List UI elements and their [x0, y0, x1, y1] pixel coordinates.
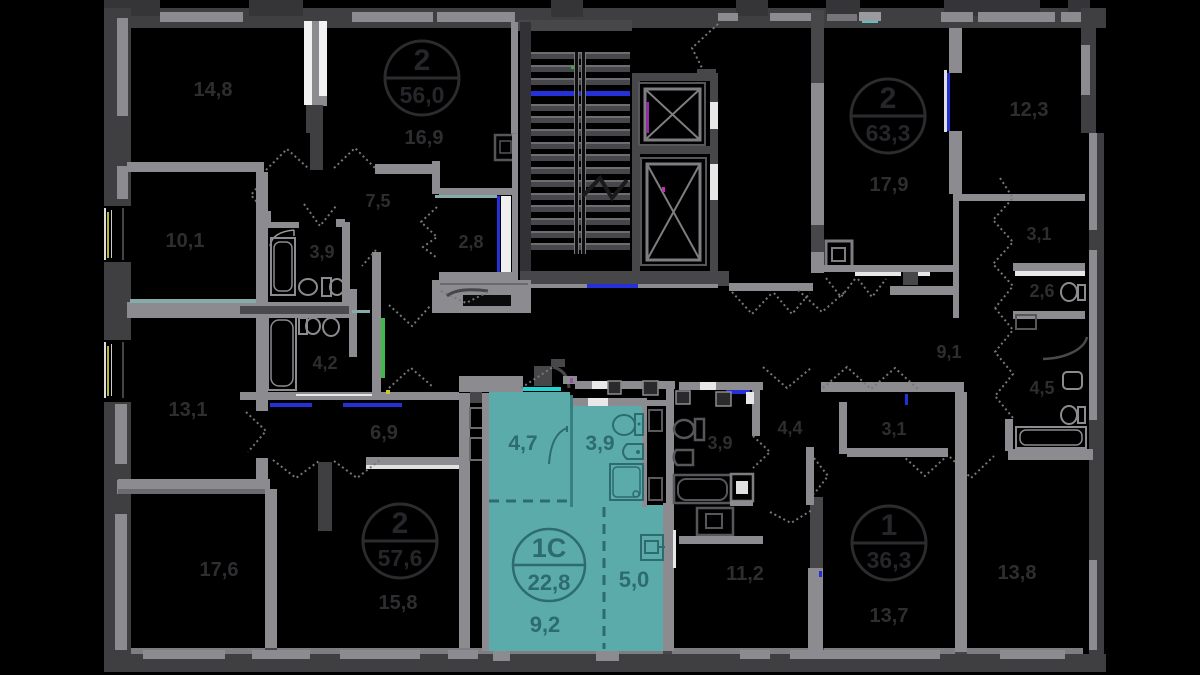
svg-text:1С: 1С [532, 533, 567, 563]
svg-text:56,0: 56,0 [400, 82, 445, 108]
svg-text:22,8: 22,8 [528, 570, 571, 595]
svg-text:1: 1 [881, 509, 898, 542]
svg-text:63,3: 63,3 [866, 120, 911, 146]
svg-text:15,8: 15,8 [379, 592, 418, 614]
svg-text:13,7: 13,7 [870, 605, 909, 627]
svg-text:57,6: 57,6 [378, 545, 423, 571]
svg-text:5,0: 5,0 [619, 567, 650, 592]
svg-text:13,8: 13,8 [998, 562, 1037, 584]
svg-text:3,9: 3,9 [585, 432, 614, 455]
svg-text:2: 2 [414, 44, 431, 77]
svg-text:4,7: 4,7 [508, 432, 537, 455]
svg-text:2,6: 2,6 [1029, 281, 1054, 301]
svg-text:13,1: 13,1 [169, 399, 208, 421]
svg-text:4,4: 4,4 [777, 418, 802, 438]
svg-text:9,2: 9,2 [530, 612, 561, 637]
svg-text:12,3: 12,3 [1010, 99, 1049, 121]
svg-text:2: 2 [392, 507, 409, 540]
svg-text:3,1: 3,1 [881, 419, 906, 439]
svg-text:6,9: 6,9 [370, 422, 398, 444]
svg-text:10,1: 10,1 [166, 230, 205, 252]
svg-text:4,2: 4,2 [312, 353, 337, 373]
svg-text:2: 2 [880, 82, 897, 115]
svg-text:7,5: 7,5 [365, 191, 390, 211]
svg-text:36,3: 36,3 [867, 547, 912, 573]
svg-text:17,6: 17,6 [200, 559, 239, 581]
svg-text:3,9: 3,9 [309, 242, 334, 262]
svg-text:16,9: 16,9 [405, 127, 444, 149]
svg-text:3,9: 3,9 [707, 433, 732, 453]
svg-text:9,1: 9,1 [936, 342, 961, 362]
svg-text:4,5: 4,5 [1029, 378, 1054, 398]
svg-text:14,8: 14,8 [194, 79, 233, 101]
svg-text:3,1: 3,1 [1026, 224, 1051, 244]
svg-text:17,9: 17,9 [870, 174, 909, 196]
svg-text:11,2: 11,2 [726, 563, 764, 585]
svg-text:2,8: 2,8 [458, 232, 483, 252]
